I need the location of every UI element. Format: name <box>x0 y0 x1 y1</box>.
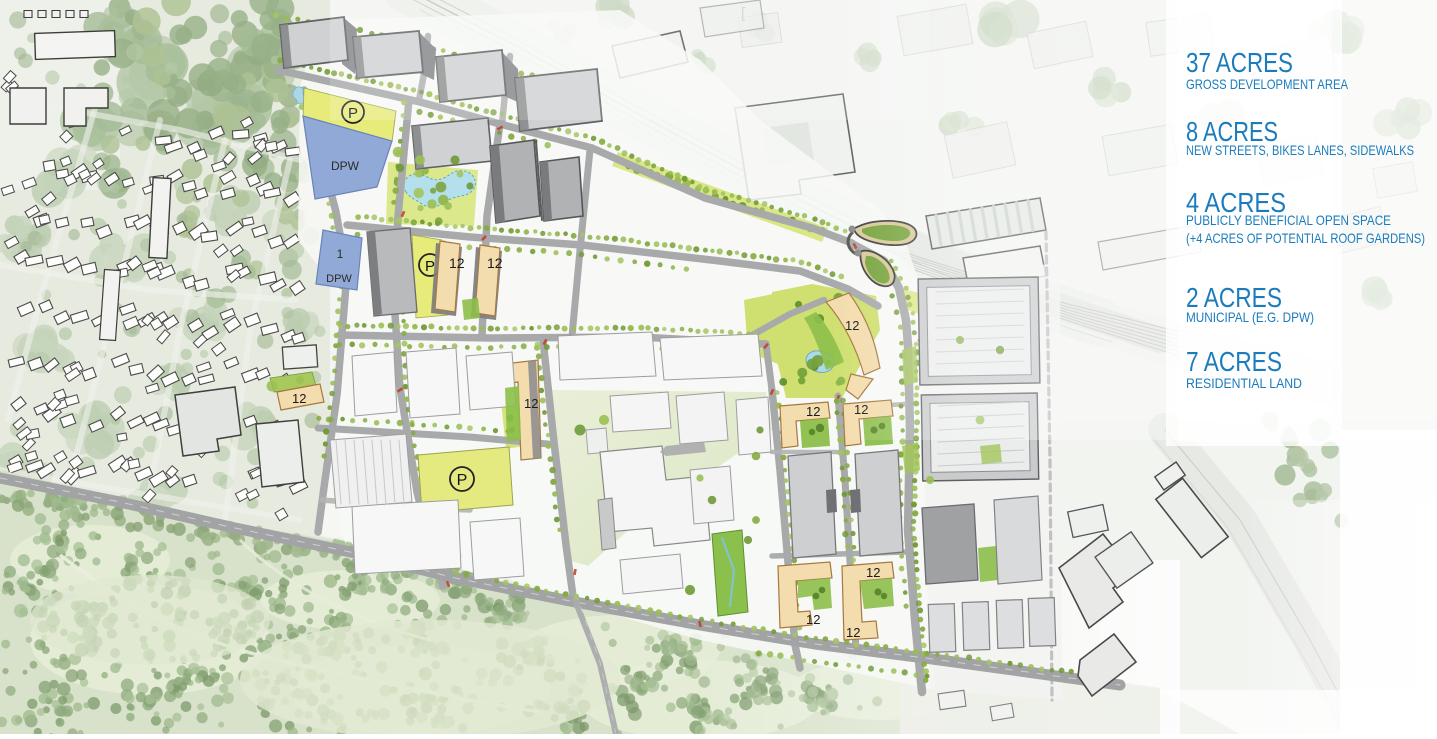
svg-text:12: 12 <box>292 391 306 406</box>
svg-text:PUBLICLY BENEFICIAL OPEN SPACE: PUBLICLY BENEFICIAL OPEN SPACE <box>1186 213 1391 228</box>
svg-text:12: 12 <box>806 612 820 627</box>
svg-text:37 ACRES: 37 ACRES <box>1186 47 1293 78</box>
svg-text:12: 12 <box>866 565 880 580</box>
svg-text:RESIDENTIAL LAND: RESIDENTIAL LAND <box>1186 376 1302 391</box>
svg-text:12: 12 <box>806 404 820 419</box>
svg-text:12: 12 <box>449 255 465 271</box>
svg-text:12: 12 <box>524 396 538 411</box>
svg-text:GROSS DEVELOPMENT AREA: GROSS DEVELOPMENT AREA <box>1186 77 1349 92</box>
svg-text:DPW: DPW <box>326 273 352 285</box>
svg-text:1: 1 <box>337 247 344 261</box>
svg-text:NEW STREETS, BIKES LANES, SIDE: NEW STREETS, BIKES LANES, SIDEWALKS <box>1186 143 1414 158</box>
svg-text:2 ACRES: 2 ACRES <box>1186 282 1282 313</box>
svg-text:12: 12 <box>487 255 503 271</box>
svg-text:(+4 ACRES OF POTENTIAL ROOF GA: (+4 ACRES OF POTENTIAL ROOF GARDENS) <box>1186 231 1425 246</box>
svg-text:P: P <box>457 472 468 489</box>
svg-text:MUNICIPAL (E.G. DPW): MUNICIPAL (E.G. DPW) <box>1186 310 1314 325</box>
svg-text:DPW: DPW <box>331 159 360 173</box>
svg-text:P: P <box>425 258 435 275</box>
svg-text:7 ACRES: 7 ACRES <box>1186 346 1282 377</box>
svg-text:12: 12 <box>846 625 860 640</box>
